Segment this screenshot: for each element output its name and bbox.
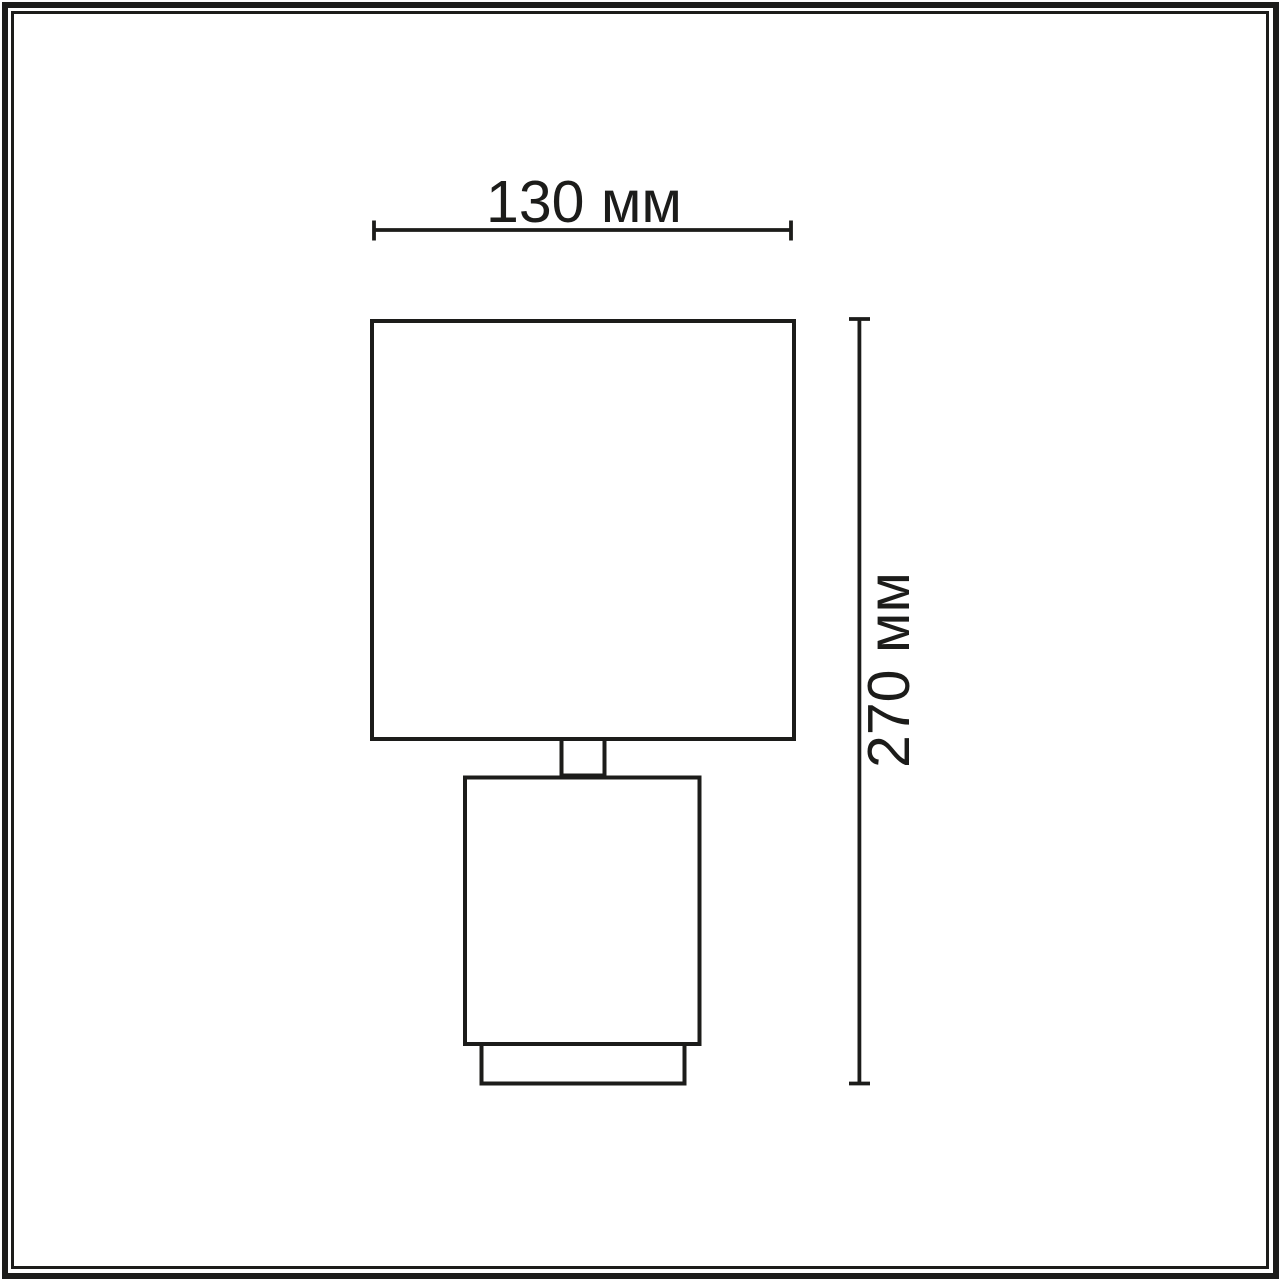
svg-text:130 мм: 130 мм [486, 169, 682, 235]
svg-text:270 мм: 270 мм [856, 572, 922, 768]
